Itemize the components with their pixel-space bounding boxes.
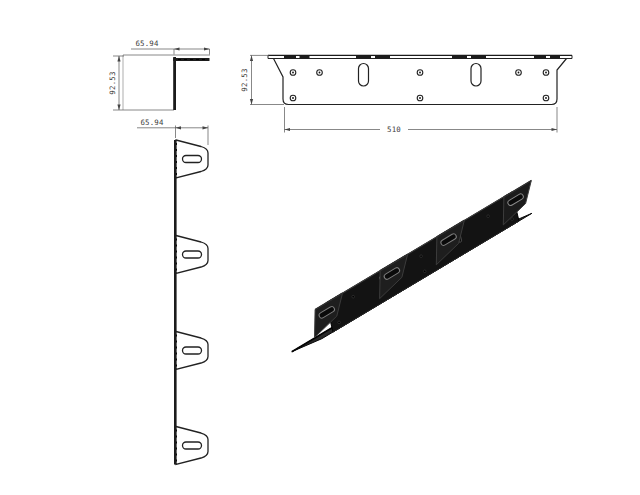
dim-label-length: 510 bbox=[387, 125, 401, 134]
tab-slot bbox=[183, 442, 202, 449]
technical-drawing: 65.94 92.53 bbox=[0, 0, 640, 495]
tab-slot bbox=[183, 251, 202, 258]
drawing-canvas: 65.94 92.53 bbox=[0, 0, 640, 495]
arrowhead bbox=[250, 55, 253, 61]
arrowhead bbox=[552, 128, 558, 131]
tab-4 bbox=[176, 427, 208, 465]
arrowhead bbox=[285, 128, 291, 131]
arrowhead bbox=[204, 47, 210, 50]
tab-3 bbox=[176, 332, 208, 370]
dim-label-front-height: 92.53 bbox=[240, 68, 249, 91]
arrowhead bbox=[176, 126, 182, 129]
iso-bend-highlight bbox=[333, 221, 519, 332]
arrowhead bbox=[250, 99, 253, 105]
dim-label-tab-width: 65.94 bbox=[140, 118, 164, 127]
plate-slot bbox=[359, 64, 369, 87]
tab-1 bbox=[176, 140, 208, 178]
dim-label-profile-height: 92.53 bbox=[108, 71, 117, 94]
iso-plate-top-edge bbox=[326, 192, 512, 303]
iso-plate-face bbox=[326, 192, 519, 332]
iso-view bbox=[292, 181, 532, 352]
arrowhead bbox=[117, 56, 120, 62]
side-profile-view: 65.94 92.53 bbox=[108, 39, 210, 110]
tab-side-view: 65.94 bbox=[137, 118, 208, 465]
tab-slot bbox=[183, 347, 202, 354]
profile-vertical-leg bbox=[173, 57, 176, 110]
tab-view-plate-edge bbox=[174, 140, 177, 465]
arrowhead bbox=[203, 126, 209, 129]
front-view: 92.53 510 bbox=[240, 55, 573, 134]
arrowhead bbox=[174, 47, 180, 50]
tab-slot bbox=[183, 156, 202, 163]
tab-2 bbox=[176, 236, 208, 274]
plate-slot bbox=[471, 64, 481, 87]
dim-label-profile-width: 65.94 bbox=[135, 39, 159, 48]
arrowhead bbox=[117, 105, 120, 111]
